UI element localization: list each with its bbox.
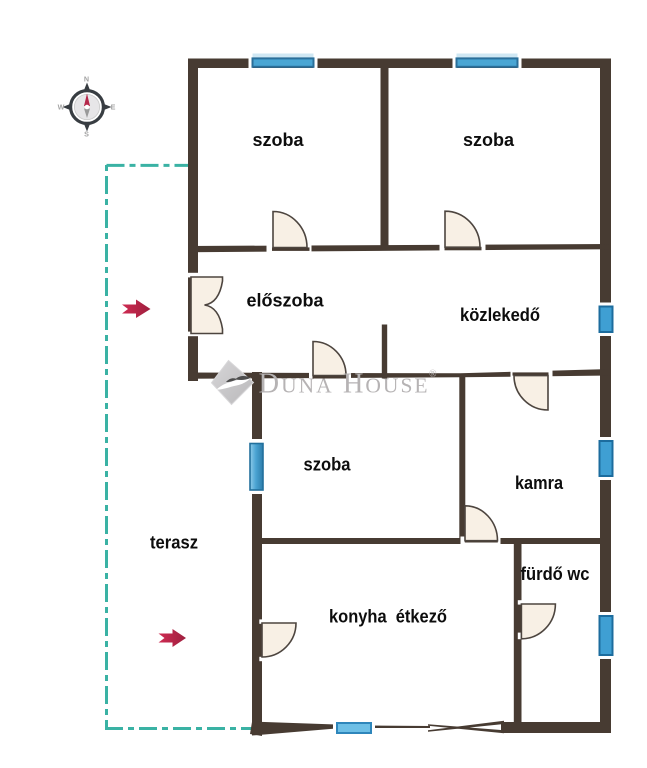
svg-text:W: W xyxy=(58,103,65,112)
svg-text:fürdő wc: fürdő wc xyxy=(521,563,590,584)
svg-text:terasz: terasz xyxy=(150,532,198,553)
svg-text:szoba: szoba xyxy=(463,129,515,150)
svg-text:közlekedő: közlekedő xyxy=(460,304,540,325)
svg-text:DUNA HOUSE: DUNA HOUSE xyxy=(259,369,430,400)
svg-text:szoba: szoba xyxy=(253,129,305,150)
svg-text:S: S xyxy=(84,130,89,139)
svg-text:szoba: szoba xyxy=(304,454,352,475)
svg-text:kamra: kamra xyxy=(515,472,564,493)
svg-text:konyha étkező: konyha étkező xyxy=(329,606,447,627)
svg-text:®: ® xyxy=(429,369,437,380)
svg-text:előszoba: előszoba xyxy=(247,290,325,311)
svg-text:N: N xyxy=(84,75,89,84)
svg-text:E: E xyxy=(111,103,116,112)
